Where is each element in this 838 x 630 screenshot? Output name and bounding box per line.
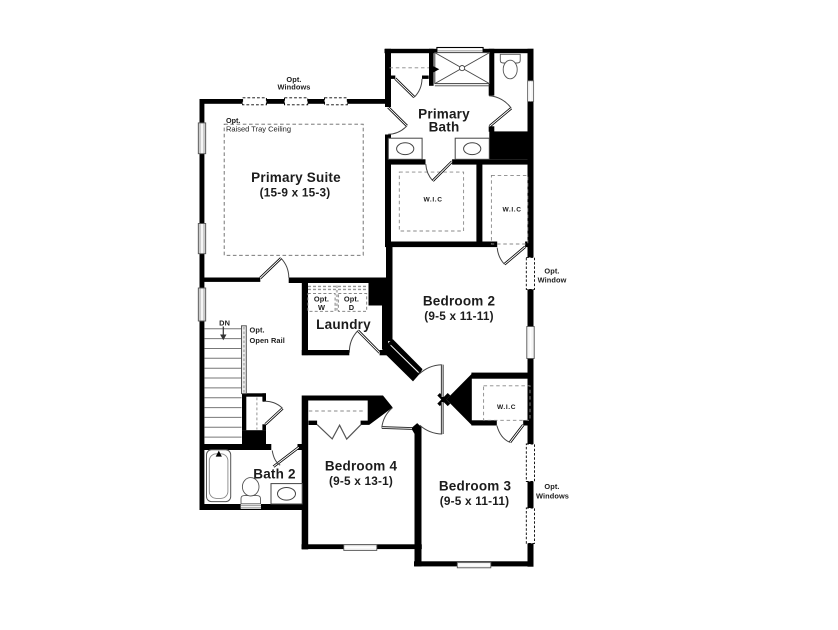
- svg-text:Laundry: Laundry: [316, 317, 371, 332]
- svg-text:Opt.: Opt.: [544, 267, 559, 276]
- svg-text:DN: DN: [219, 319, 230, 328]
- svg-text:Raised Tray Ceiling: Raised Tray Ceiling: [226, 125, 291, 134]
- svg-text:W.I.C: W.I.C: [502, 206, 521, 213]
- svg-text:Bath: Bath: [429, 120, 460, 135]
- svg-text:W.I.C: W.I.C: [497, 404, 516, 411]
- svg-text:Windows: Windows: [536, 491, 569, 500]
- svg-text:W: W: [318, 303, 325, 312]
- svg-text:Opt.: Opt.: [250, 326, 265, 335]
- svg-text:Bedroom 3: Bedroom 3: [439, 479, 512, 494]
- svg-text:Windows: Windows: [277, 83, 310, 92]
- svg-text:(9-5 x 13-1): (9-5 x 13-1): [329, 474, 393, 488]
- svg-text:W.I.C: W.I.C: [423, 196, 442, 203]
- svg-text:(15-9 x 15-3): (15-9 x 15-3): [260, 186, 331, 200]
- svg-text:(9-5 x 11-11): (9-5 x 11-11): [424, 309, 494, 323]
- svg-text:Bath 2: Bath 2: [253, 467, 295, 482]
- svg-text:Primary Suite: Primary Suite: [251, 170, 341, 185]
- svg-text:Bedroom 4: Bedroom 4: [325, 459, 398, 474]
- svg-text:Opt.: Opt.: [226, 116, 240, 125]
- svg-text:Bedroom 2: Bedroom 2: [423, 294, 495, 309]
- svg-text:Window: Window: [538, 276, 567, 285]
- svg-text:(9-5 x 11-11): (9-5 x 11-11): [440, 494, 510, 508]
- svg-text:Open Rail: Open Rail: [250, 336, 285, 345]
- svg-text:D: D: [349, 303, 355, 312]
- svg-text:Opt.: Opt.: [544, 482, 559, 491]
